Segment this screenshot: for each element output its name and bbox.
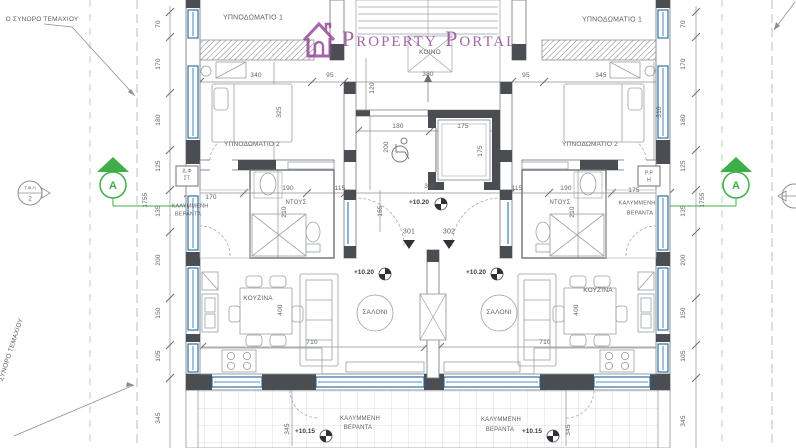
entrance-arrows [403,240,455,249]
watermark: Property Portal [300,18,517,60]
bathroom-left [250,162,334,258]
veranda-mid [200,190,656,258]
section-letter: A [109,180,117,192]
elevator [428,110,500,190]
watermark-text: Property Portal [342,26,517,52]
wheelchair-icon [392,138,409,162]
veranda-tiles [186,390,670,448]
detail-marker-right [778,184,796,208]
bathroom-right [522,162,606,258]
house-logo-icon [300,18,338,60]
section-letter: A [732,180,740,192]
section-cut-line [113,198,736,206]
floor-plan-drawing [0,0,796,448]
floor-plan-canvas: ΥΠΝΟΔΩΜΑΤΙΟ 1ΥΠΝΟΔΩΜΑΤΙΟ 1ΥΠΝΟΔΩΜΑΤΙΟ 2Υ… [0,0,796,448]
